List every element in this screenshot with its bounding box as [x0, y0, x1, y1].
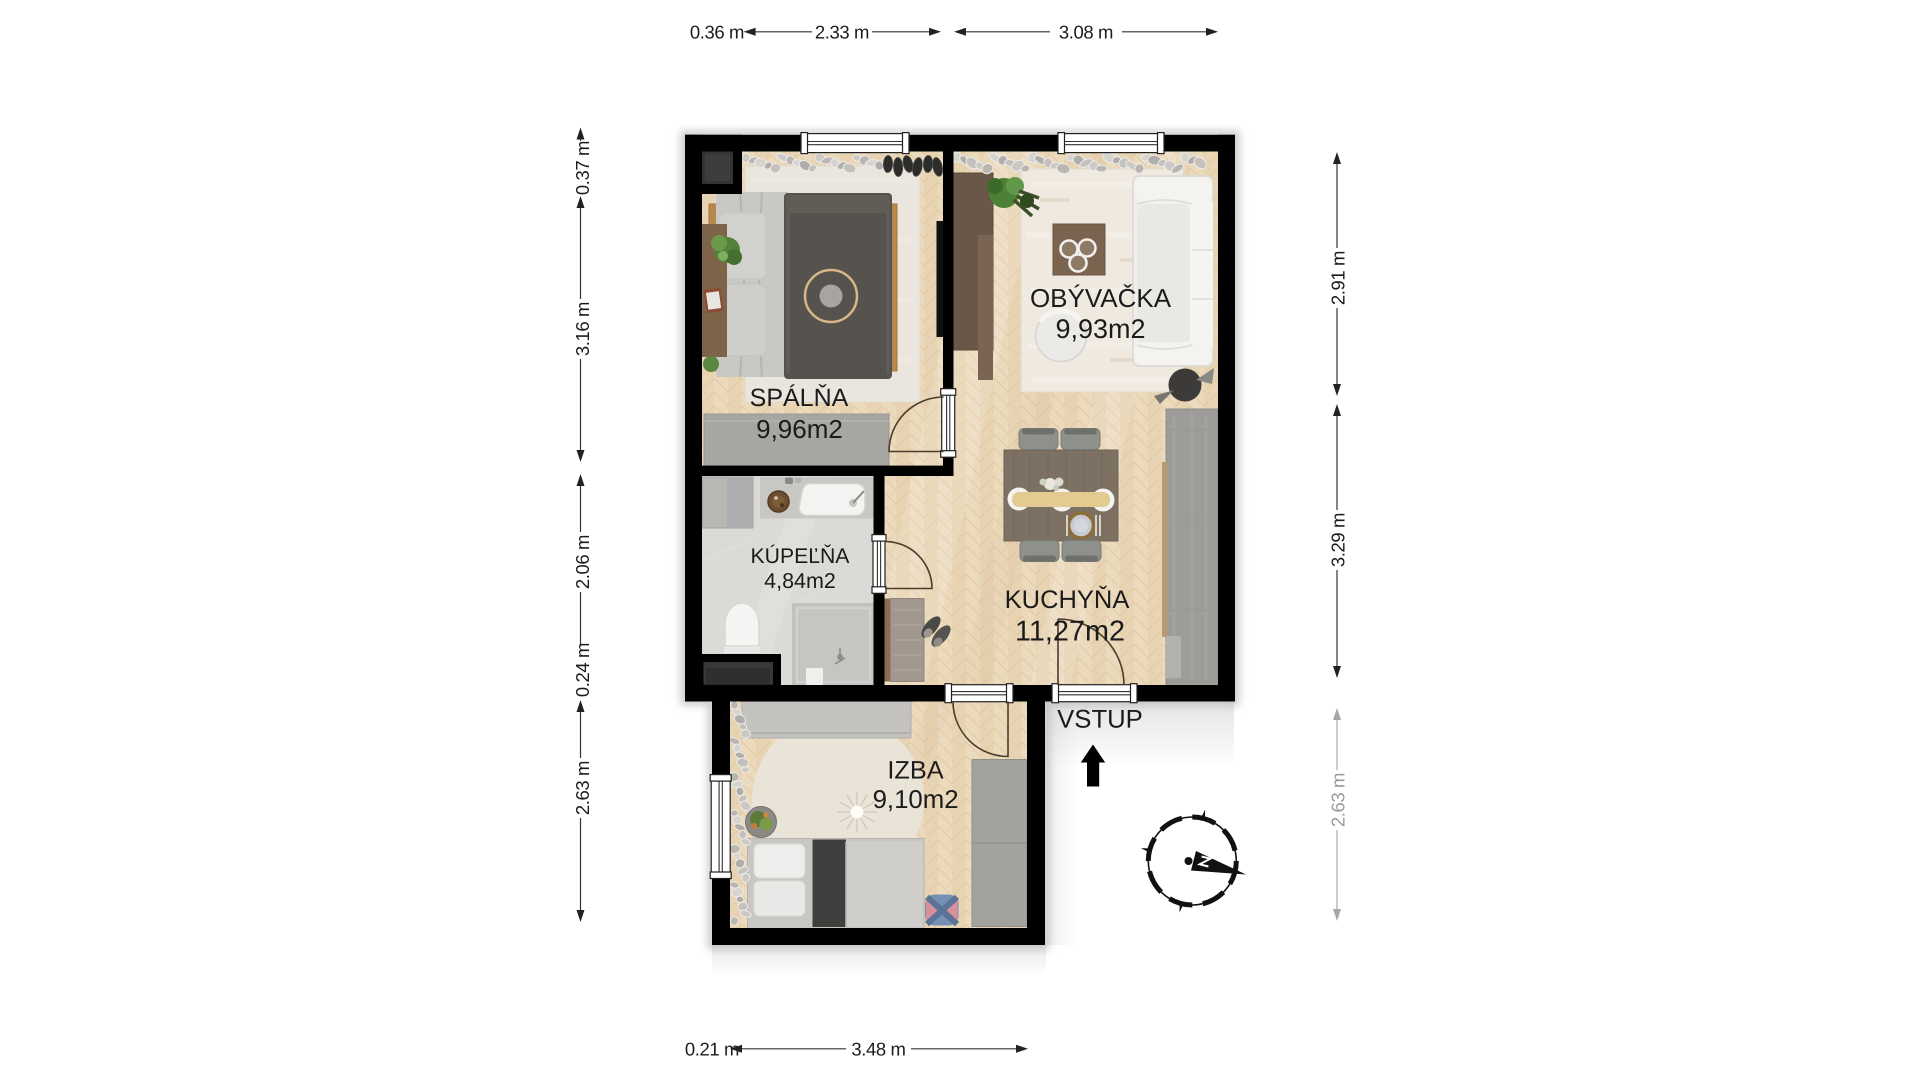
svg-text:9,93m2: 9,93m2	[1055, 314, 1145, 344]
svg-text:9,10m2: 9,10m2	[873, 786, 959, 814]
svg-text:0.36 m: 0.36 m	[690, 21, 744, 42]
svg-text:11,27m2: 11,27m2	[1015, 615, 1125, 647]
svg-text:2.63 m: 2.63 m	[572, 761, 593, 815]
svg-text:2.63 m: 2.63 m	[1328, 773, 1349, 827]
svg-text:KUCHYŇA: KUCHYŇA	[1005, 585, 1130, 614]
svg-text:9,96m2: 9,96m2	[756, 414, 843, 444]
svg-text:SPÁLŇA: SPÁLŇA	[750, 383, 849, 412]
svg-text:2.33 m: 2.33 m	[815, 21, 869, 42]
svg-text:VSTUP: VSTUP	[1057, 706, 1143, 734]
svg-text:0.37 m: 0.37 m	[572, 141, 593, 195]
svg-text:KÚPEĽŇA: KÚPEĽŇA	[751, 543, 851, 568]
svg-text:IZBA: IZBA	[887, 756, 943, 784]
svg-text:4,84m2: 4,84m2	[764, 569, 836, 593]
svg-text:3.16 m: 3.16 m	[572, 302, 593, 356]
svg-text:0.24 m: 0.24 m	[572, 643, 593, 697]
svg-text:3.48 m: 3.48 m	[851, 1038, 905, 1059]
svg-text:3.29 m: 3.29 m	[1328, 513, 1349, 567]
svg-text:3.08 m: 3.08 m	[1059, 21, 1113, 42]
svg-text:2.91 m: 2.91 m	[1328, 251, 1349, 305]
svg-text:2.06 m: 2.06 m	[572, 535, 593, 589]
svg-text:OBÝVAČKA: OBÝVAČKA	[1030, 283, 1172, 313]
